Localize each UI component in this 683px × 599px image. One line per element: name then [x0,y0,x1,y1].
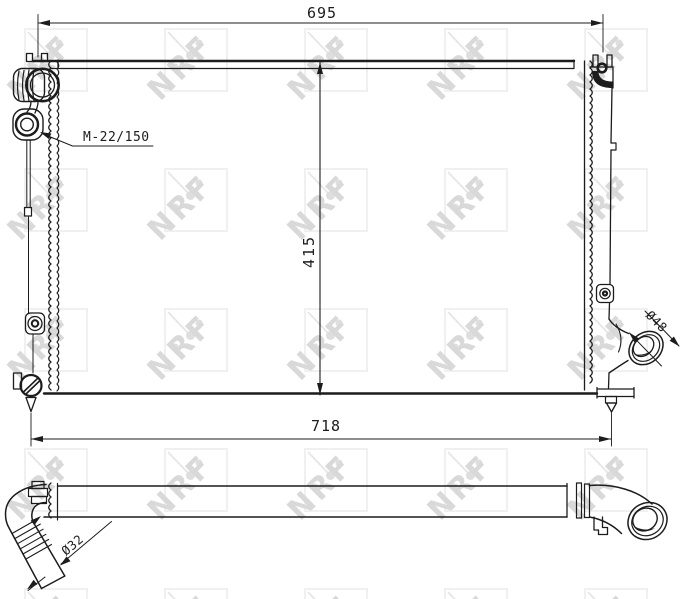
dimension-overall-width-label: 718 [311,417,341,435]
drain-plug-tip [607,403,617,412]
boss-bore [21,118,34,131]
arrowhead-left [38,20,50,26]
watermark-layer [1,28,647,599]
outlet-bead-outer [621,495,674,546]
mount-hole-center [32,320,38,326]
arrowhead-right [599,436,611,442]
boss-thread-ring [16,114,38,136]
dimension-core-height-label: 415 [300,235,318,268]
mount-plate [597,285,614,303]
drain-plug-body [606,397,617,404]
hose-end-edge [42,576,65,589]
technical-drawing-canvas: NRF [0,0,683,599]
arrowhead-right [591,20,603,26]
right-bolt-mount [597,285,614,303]
radiator-technical-drawing: NRF [0,0,683,599]
dimension-top-width-label: 695 [307,4,337,22]
drain-tip [26,398,36,412]
hose-diameter-label: Ø32 [58,531,86,558]
arrowhead-b [27,580,37,590]
hose-corrugation-ribs [12,519,52,559]
inlet-thread-label: M-22/150 [83,130,150,145]
right-tank-clip [611,143,616,150]
mount-hole-center [603,292,607,296]
mount-hole [600,288,610,298]
arrowhead-left [31,436,43,442]
threaded-boss-m22 [13,109,43,140]
dimension-overall-width: 718 [31,413,612,446]
right-bottom-flange [597,388,634,413]
